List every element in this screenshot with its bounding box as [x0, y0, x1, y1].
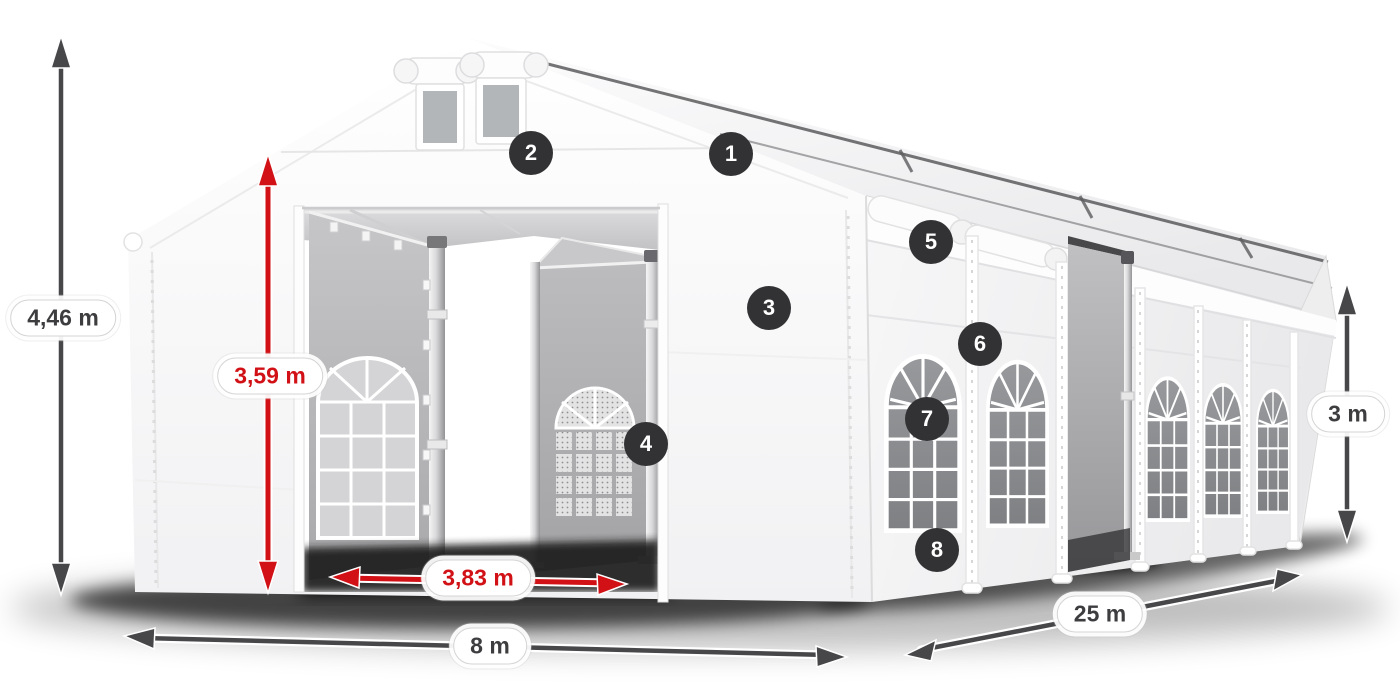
- dimension-label-side-height: 3 m: [1311, 396, 1385, 433]
- entrance-interior: [302, 208, 666, 592]
- eave-corner-cap: [124, 233, 142, 251]
- dimension-label-total-height: 4,46 m: [10, 300, 116, 337]
- dimension-label-entrance-height: 3,59 m: [217, 358, 323, 395]
- tent-dimension-diagram: 4,46 m 3,59 m 3,83 m 8 m 25 m 3 m 1 2 3 …: [0, 0, 1400, 700]
- side-entrance-opening: [1068, 236, 1140, 572]
- callout-badge-4[interactable]: 4: [624, 422, 668, 466]
- callout-badge-8[interactable]: 8: [915, 528, 959, 572]
- callout-badge-1[interactable]: 1: [709, 132, 753, 176]
- callout-badge-3[interactable]: 3: [747, 286, 791, 330]
- frame-pole: [530, 262, 540, 568]
- tent-illustration: [0, 0, 1400, 700]
- callout-badge-6[interactable]: 6: [958, 322, 1002, 366]
- dimension-label-side-length: 25 m: [1057, 596, 1143, 633]
- side-window: [1257, 390, 1289, 512]
- callout-badge-2[interactable]: 2: [509, 131, 553, 175]
- dimension-label-entrance-width: 3,83 m: [425, 560, 531, 597]
- side-window: [1146, 378, 1188, 521]
- side-window: [886, 356, 959, 531]
- dimension-label-front-width: 8 m: [453, 628, 527, 665]
- door-panel-left: [309, 212, 431, 580]
- callout-badge-5[interactable]: 5: [909, 220, 953, 264]
- callout-badge-7[interactable]: 7: [905, 397, 949, 441]
- side-window: [988, 361, 1047, 526]
- frame-pole: [1124, 258, 1132, 556]
- side-window: [1204, 384, 1242, 516]
- door-panel-far: [534, 262, 652, 572]
